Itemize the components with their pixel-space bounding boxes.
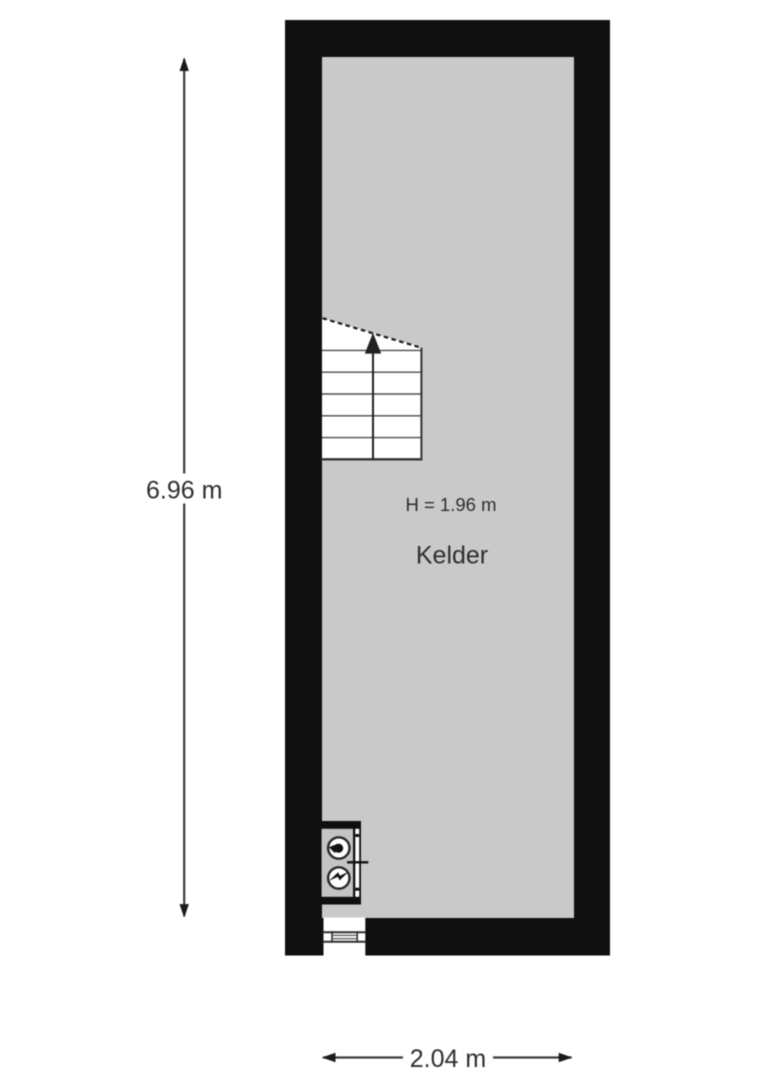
svg-text:2.04 m: 2.04 m — [410, 1045, 486, 1073]
svg-text:Kelder: Kelder — [416, 542, 488, 570]
svg-text:6.96 m: 6.96 m — [146, 477, 222, 505]
svg-text:H = 1.96 m: H = 1.96 m — [405, 494, 496, 515]
